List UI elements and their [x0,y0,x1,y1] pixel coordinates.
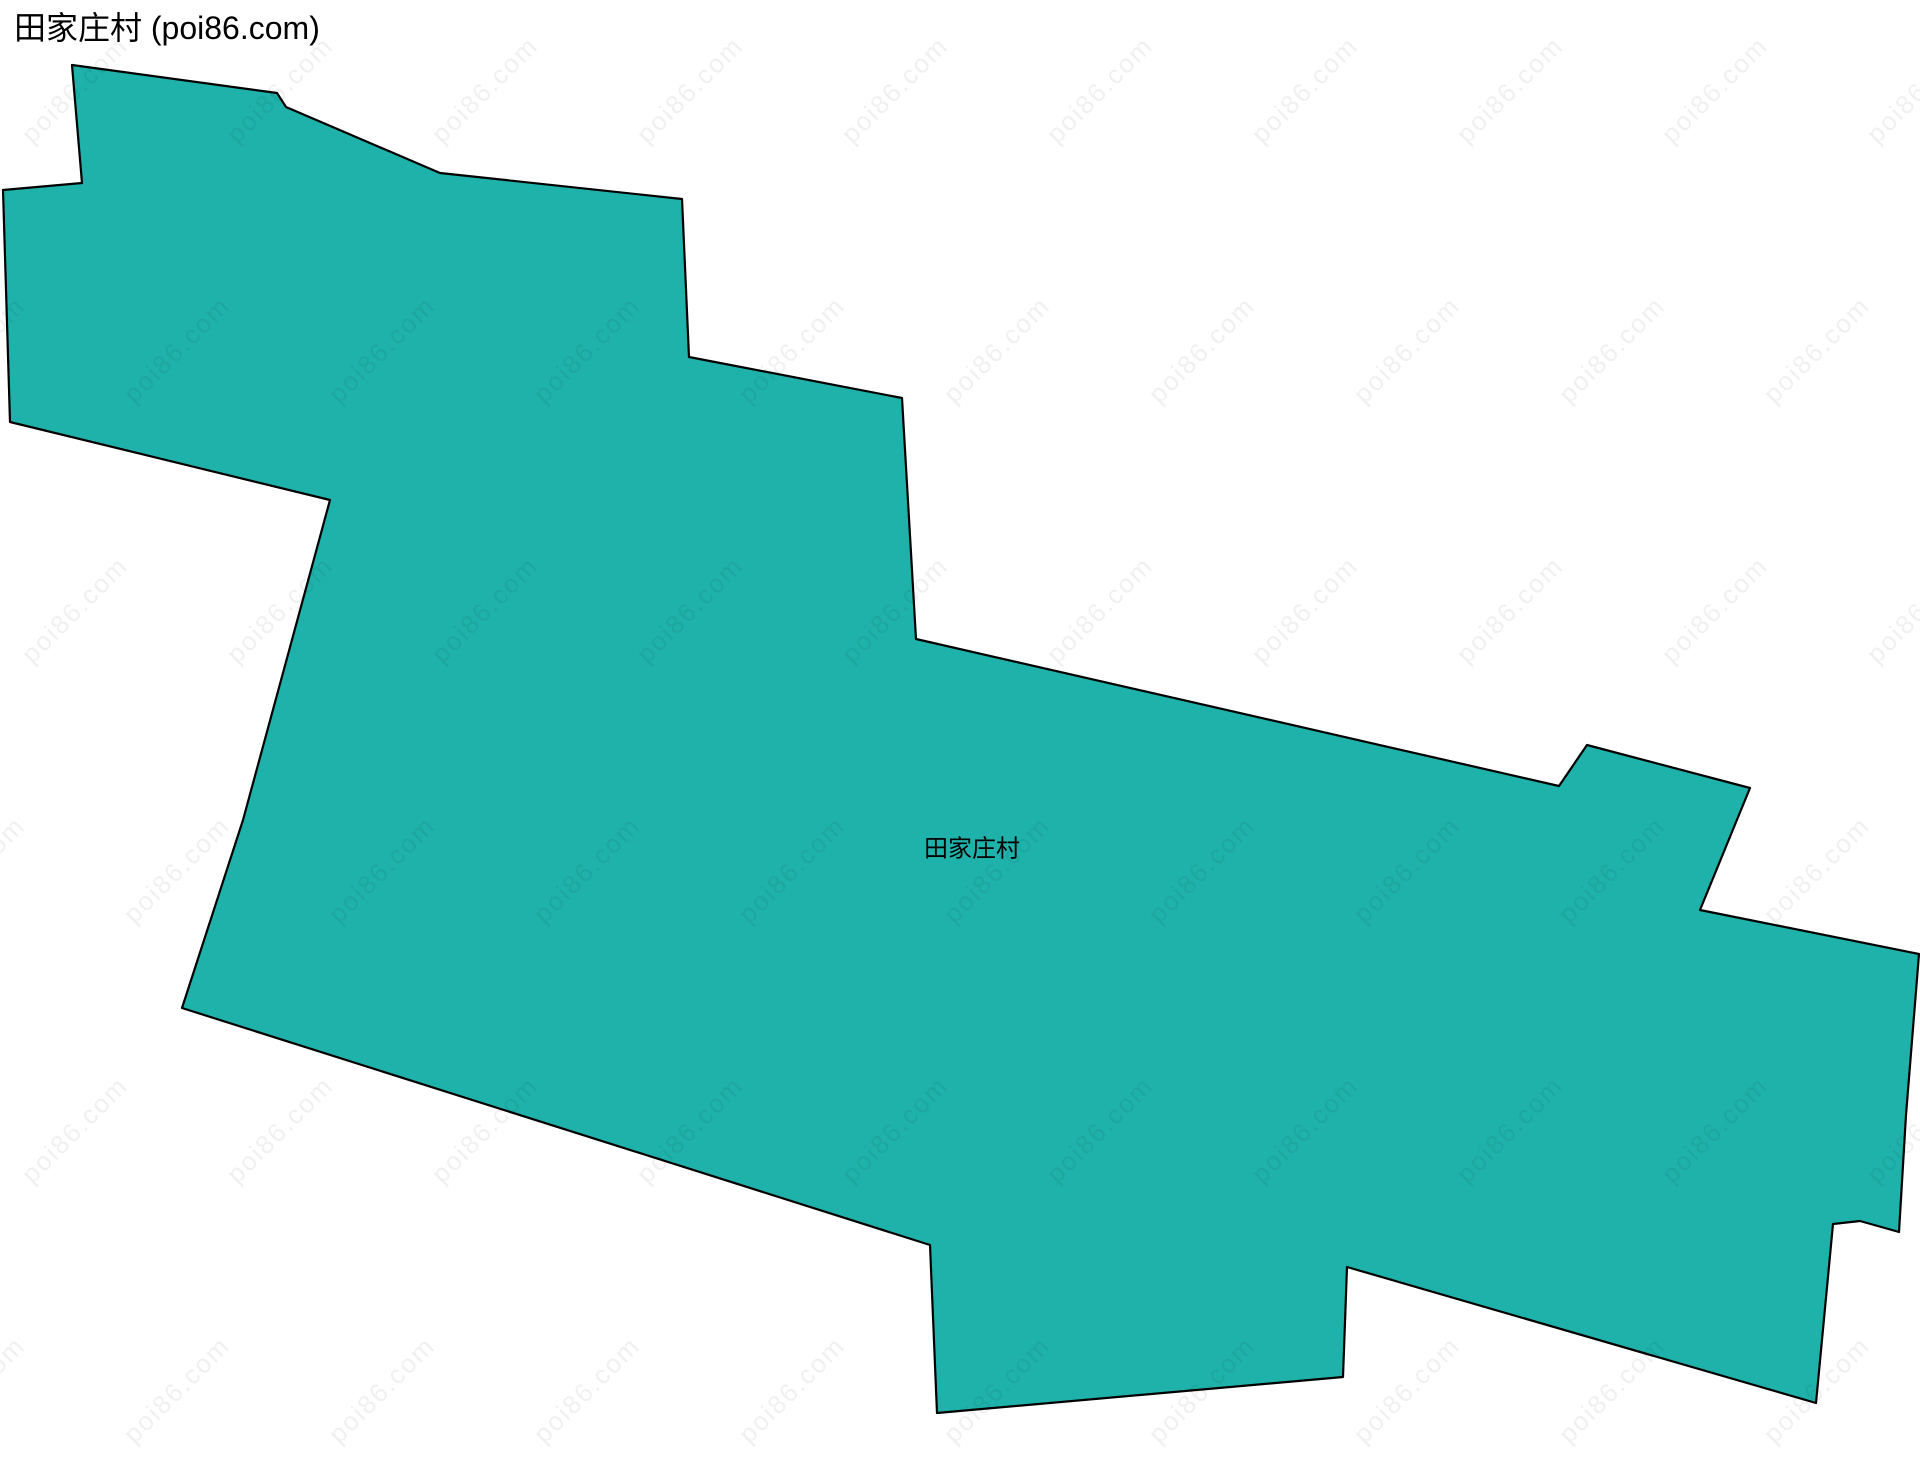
village-name-label: 田家庄村 [924,829,1020,864]
page-title: 田家庄村 (poi86.com) [14,10,320,47]
village-boundary-polygon [3,65,1919,1413]
boundary-map-svg [0,0,1920,1478]
map-canvas: poi86.compoi86.compoi86.compoi86.compoi8… [0,0,1920,1478]
